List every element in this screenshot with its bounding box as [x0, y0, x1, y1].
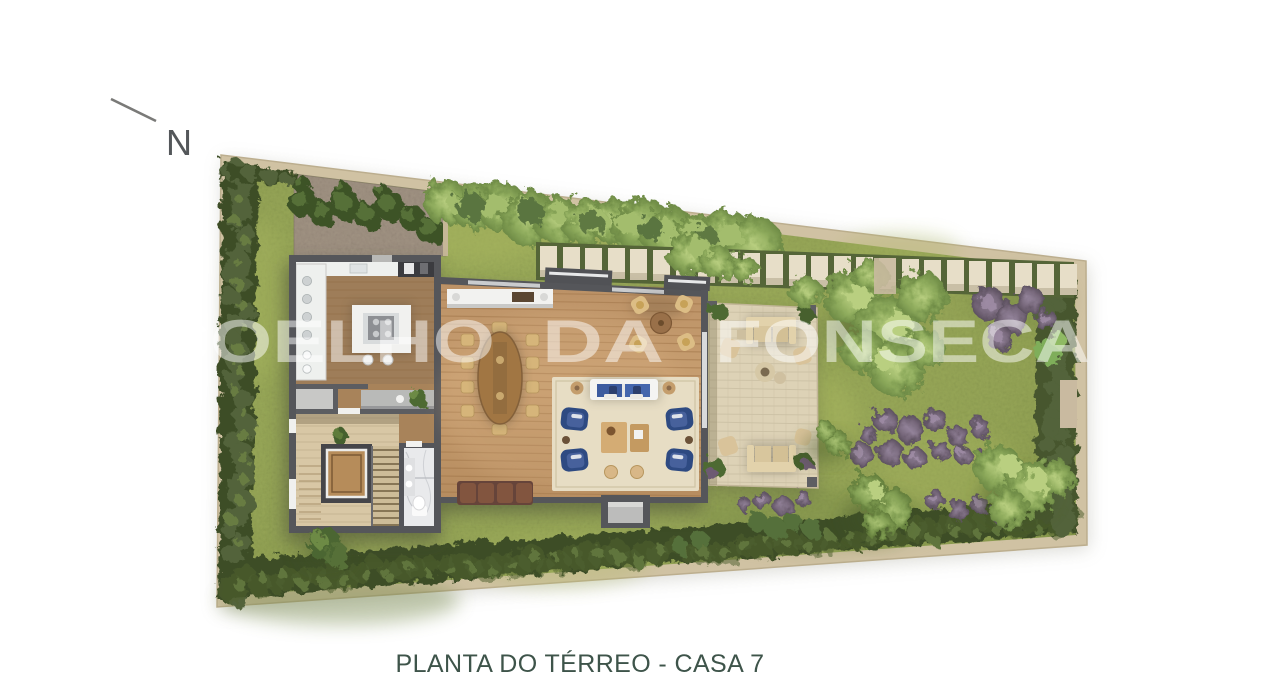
svg-text:DA: DA: [542, 308, 664, 375]
svg-text:PLANTA DO TÉRREO - CASA 7: PLANTA DO TÉRREO - CASA 7: [396, 649, 765, 678]
svg-text:FONSECA: FONSECA: [715, 308, 1090, 375]
svg-text:COELHO: COELHO: [152, 308, 495, 375]
svg-text:N: N: [166, 122, 192, 163]
